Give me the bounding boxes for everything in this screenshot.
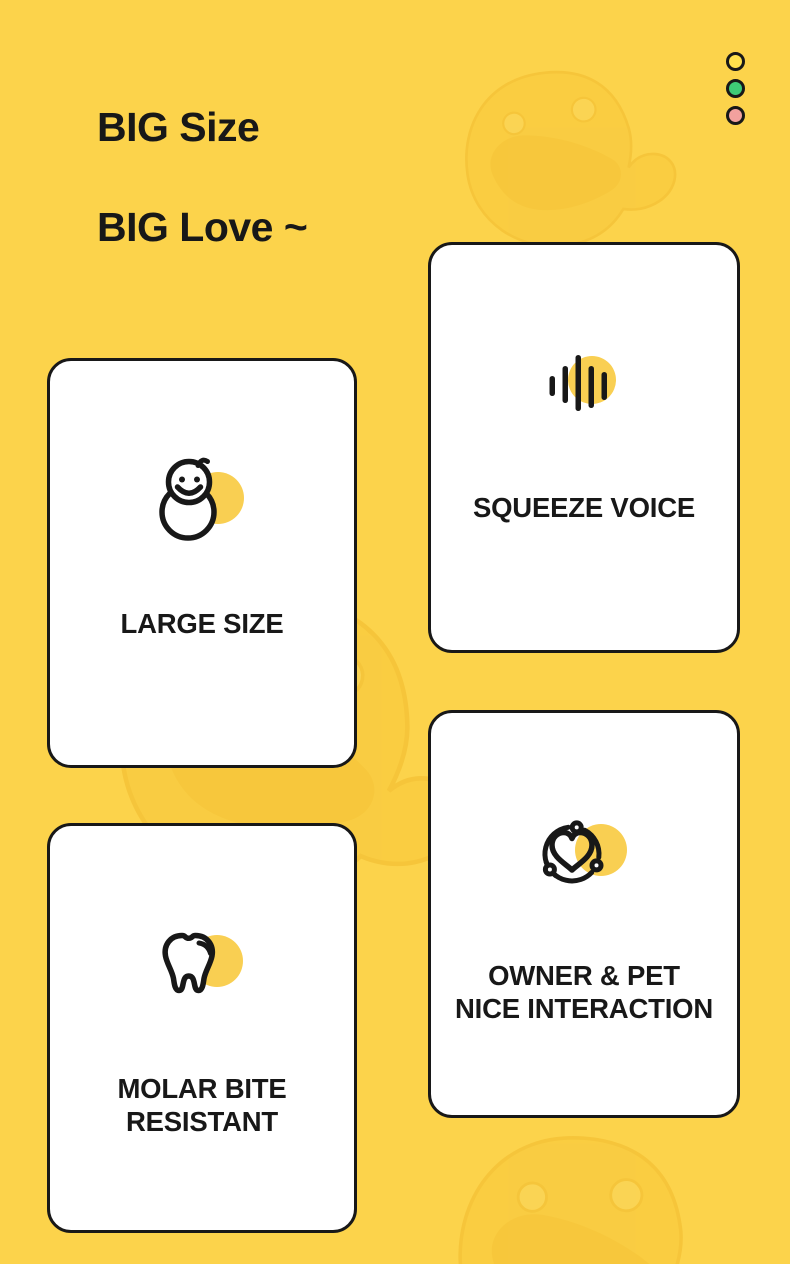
pink-dot [726, 106, 745, 125]
tooth-icon [158, 916, 246, 1014]
page-title: BIG Size BIG Love ~ [97, 106, 307, 249]
yellow-dot [726, 52, 745, 71]
label-line: RESISTANT [117, 1105, 286, 1138]
promo-page: BIG Size BIG Love ~ LARGE SIZE [0, 0, 790, 1264]
label-line: OWNER & PET [455, 959, 713, 992]
label-line: MOLAR BITE [117, 1072, 286, 1105]
duck-watermark [431, 1117, 761, 1264]
feature-label: OWNER & PET NICE INTERACTION [455, 959, 713, 1025]
feature-card-owner-pet: OWNER & PET NICE INTERACTION [428, 710, 740, 1118]
title-line-1: BIG Size [97, 106, 307, 149]
feature-label: MOLAR BITE RESISTANT [117, 1072, 286, 1138]
label-line: SQUEEZE VOICE [473, 491, 695, 524]
feature-label: SQUEEZE VOICE [473, 491, 695, 524]
sound-wave-icon [548, 335, 620, 433]
title-line-2: BIG Love ~ [97, 206, 307, 249]
interaction-icon [538, 803, 630, 901]
duck-icon [156, 451, 248, 549]
label-line: NICE INTERACTION [455, 992, 713, 1025]
green-dot [726, 79, 745, 98]
feature-card-squeeze-voice: SQUEEZE VOICE [428, 242, 740, 653]
decor-dots [726, 52, 745, 125]
feature-card-large-size: LARGE SIZE [47, 358, 357, 768]
feature-card-molar-bite: MOLAR BITE RESISTANT [47, 823, 357, 1233]
label-line: LARGE SIZE [120, 607, 283, 640]
feature-label: LARGE SIZE [120, 607, 283, 640]
